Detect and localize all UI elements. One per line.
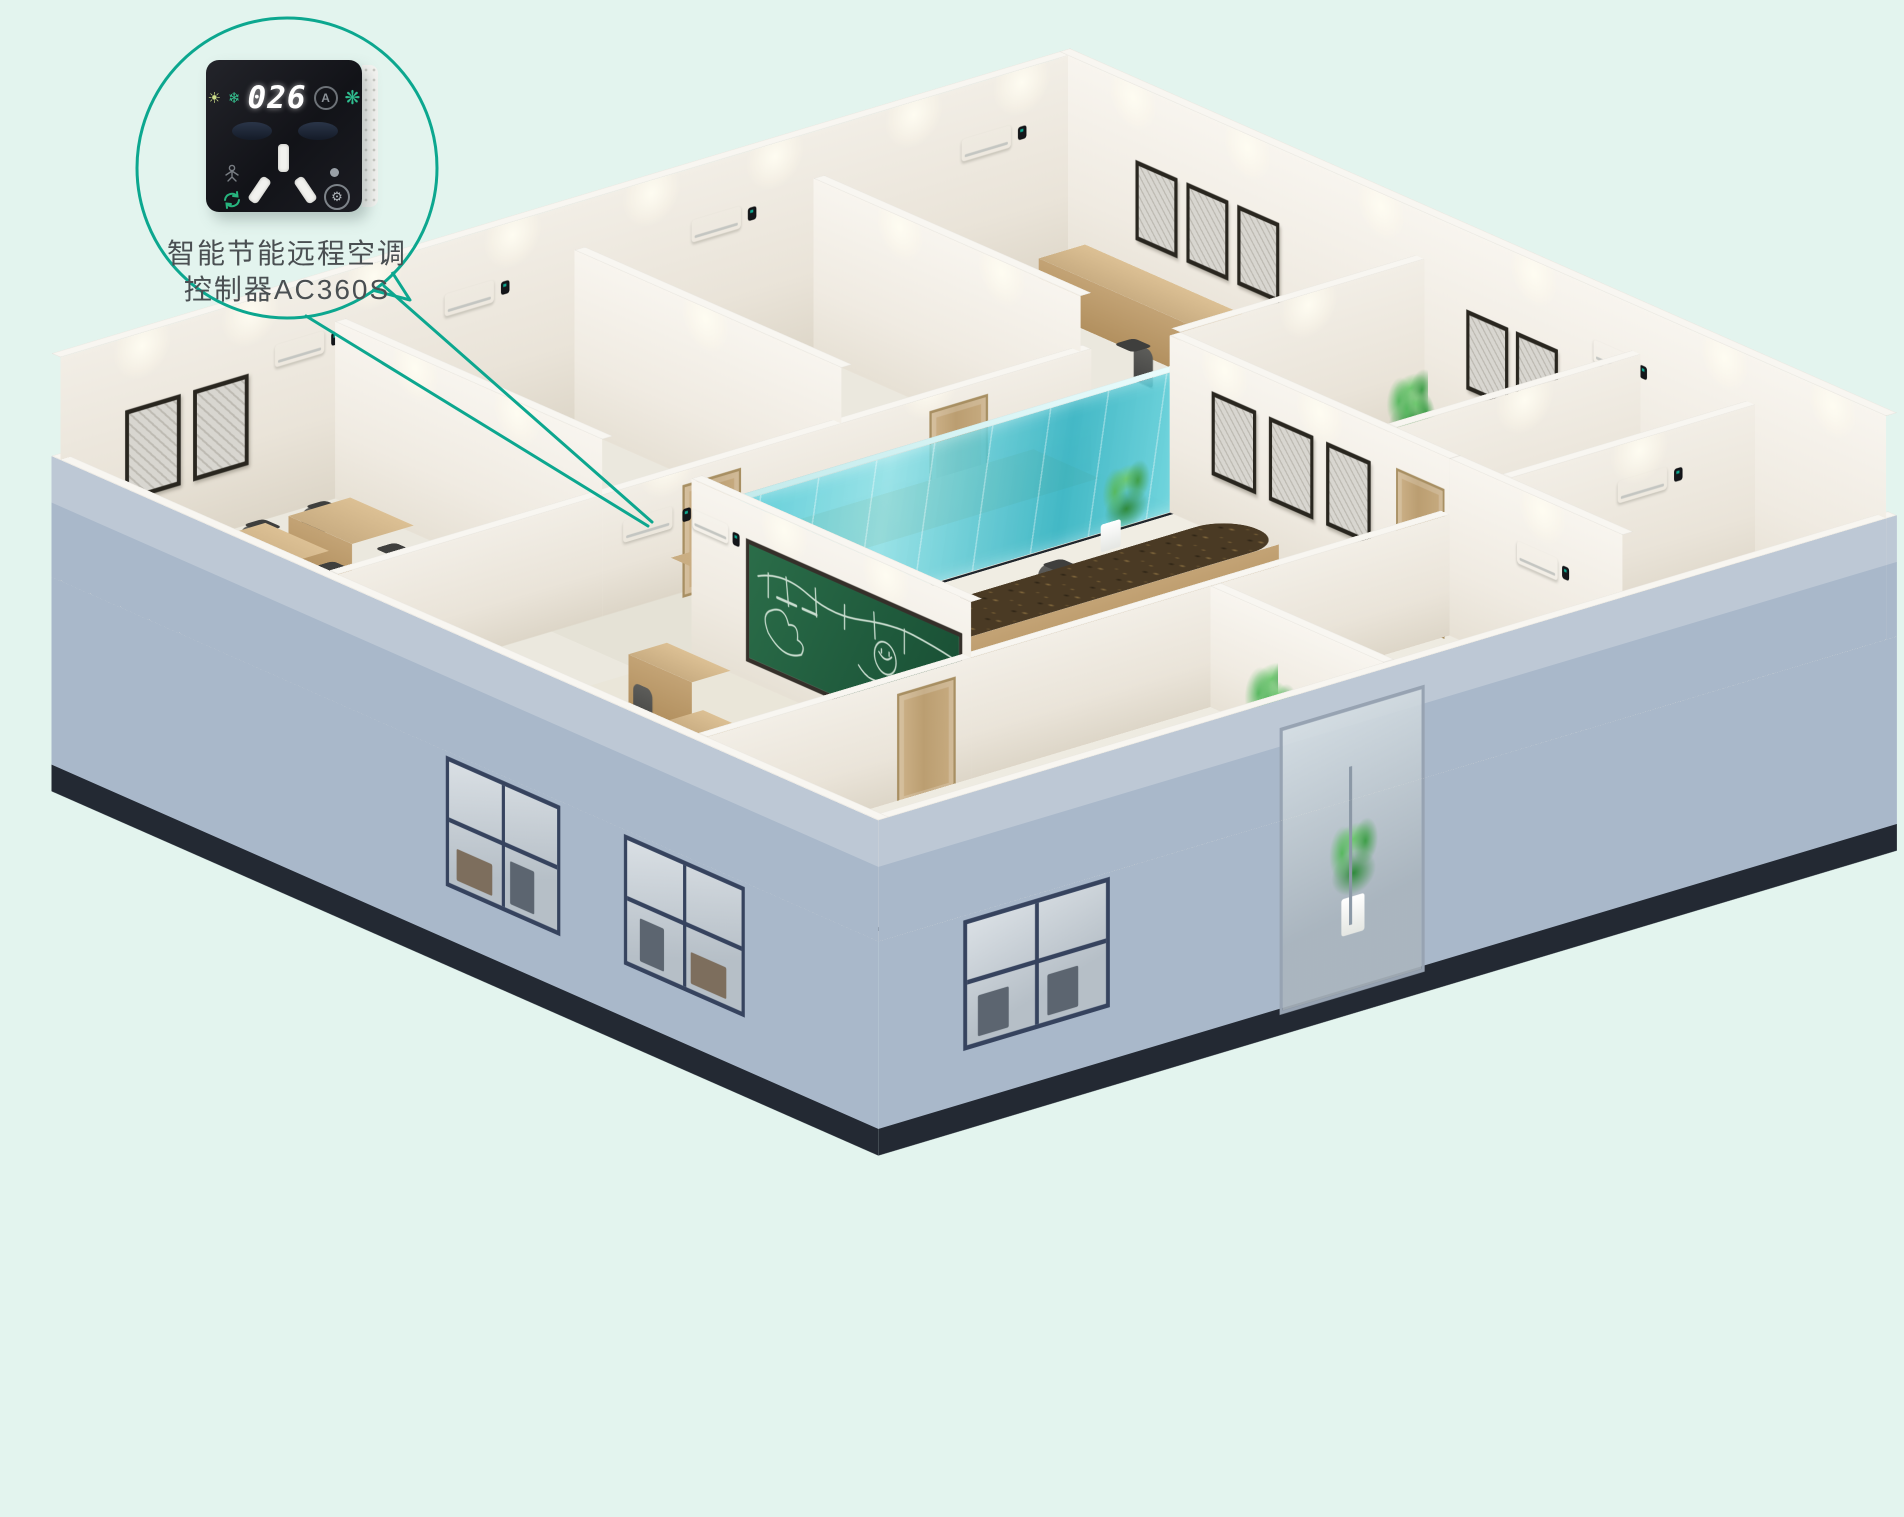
callout-caption-line1: 智能节能远程空调 xyxy=(167,232,407,272)
ac-controller xyxy=(749,207,756,220)
picture-frame xyxy=(1136,160,1178,259)
presence-icon xyxy=(224,164,240,182)
picture-frame xyxy=(193,374,249,482)
front-window xyxy=(963,877,1110,1051)
socket-slot-left xyxy=(247,175,272,204)
spotlight-glow xyxy=(739,129,810,255)
ac-controller xyxy=(502,281,509,294)
spotlight-glow xyxy=(477,208,548,334)
sun-icon: ☀ xyxy=(208,91,221,106)
chair-silhouette xyxy=(510,861,534,915)
door-handle xyxy=(1349,766,1352,925)
device-display: ☀ ❄ 026 A ❋ xyxy=(206,80,362,116)
plant-pot xyxy=(1341,893,1364,937)
callout-caption-line2: 控制器AC360S xyxy=(184,268,390,308)
chair-silhouette xyxy=(640,918,664,972)
front-window xyxy=(624,834,745,1018)
entrance-glass-door xyxy=(1280,685,1425,1015)
device-side-vents xyxy=(362,65,378,207)
sync-icon xyxy=(220,188,244,212)
ac-controller xyxy=(733,533,739,547)
device-front-panel: ☀ ❄ 026 A ❋ ⚙ xyxy=(206,60,362,212)
auto-mode-icon: A xyxy=(314,86,338,110)
sensor-window xyxy=(232,122,272,140)
snowflake-icon: ❄ xyxy=(228,91,241,106)
desk-silhouette xyxy=(691,952,727,999)
socket-slot-right xyxy=(293,175,318,204)
ac-controller xyxy=(1675,468,1682,481)
sensor-window xyxy=(298,122,338,140)
picture-frame xyxy=(1237,205,1279,304)
temperature-readout: 026 xyxy=(248,80,307,116)
spotlight-glow xyxy=(986,55,1057,181)
office-building xyxy=(51,272,1896,941)
plant-behind-glass xyxy=(1324,803,1383,910)
ac-controller-target xyxy=(683,508,690,521)
picture-frame xyxy=(1326,442,1371,545)
spotlight-glow xyxy=(878,87,949,213)
desk-silhouette xyxy=(457,849,493,896)
ac-controller xyxy=(1019,126,1026,139)
settings-gear-icon: ⚙ xyxy=(324,184,350,210)
front-window xyxy=(446,755,560,936)
status-led xyxy=(330,168,339,177)
illustration-canvas: ☀ ❄ 026 A ❋ ⚙ 智能节 xyxy=(0,0,1904,1517)
ac-controller-device: ☀ ❄ 026 A ❋ ⚙ xyxy=(206,60,378,212)
ac-controller xyxy=(1563,566,1569,580)
socket-slot-top xyxy=(278,144,289,172)
ac-unit xyxy=(692,206,741,243)
fan-icon: ❋ xyxy=(345,89,361,108)
ac-controller xyxy=(1641,366,1647,380)
chair-silhouette xyxy=(978,986,1009,1036)
ac-unit xyxy=(693,509,729,544)
picture-frame xyxy=(1186,182,1228,281)
chair-silhouette xyxy=(1047,965,1078,1015)
